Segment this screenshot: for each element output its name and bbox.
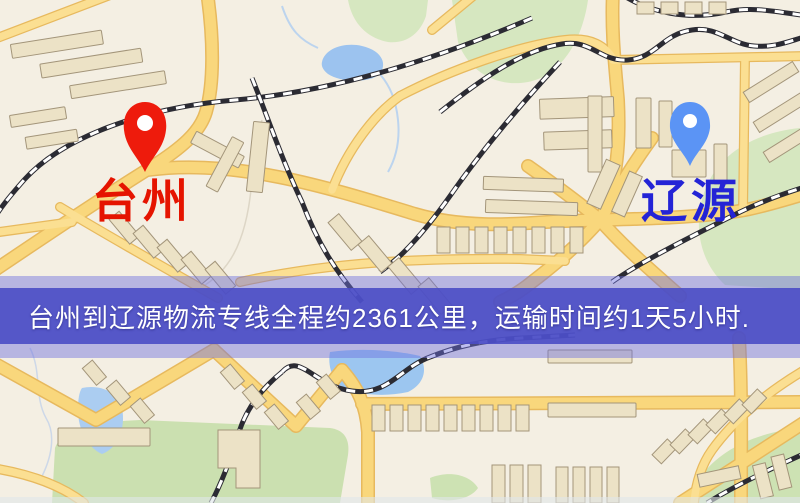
logistics-map-screenshot: 台州到辽源物流专线全程约2361公里，运输时间约1天5小时. 台州 辽源 — [0, 0, 800, 503]
origin-label: 台州 — [92, 176, 192, 227]
blue-location-pin-icon — [668, 100, 712, 168]
destination-label: 辽源 — [641, 176, 741, 227]
route-info-banner: 台州到辽源物流专线全程约2361公里，运输时间约1天5小时. — [0, 288, 800, 344]
red-location-pin-icon — [121, 100, 169, 174]
map-bottom-edge — [0, 497, 800, 503]
route-info-text: 台州到辽源物流专线全程约2361公里，运输时间约1天5小时. — [0, 298, 750, 335]
destination-pin[interactable] — [668, 100, 712, 168]
origin-pin[interactable] — [121, 100, 169, 174]
map-canvas[interactable] — [0, 0, 800, 503]
